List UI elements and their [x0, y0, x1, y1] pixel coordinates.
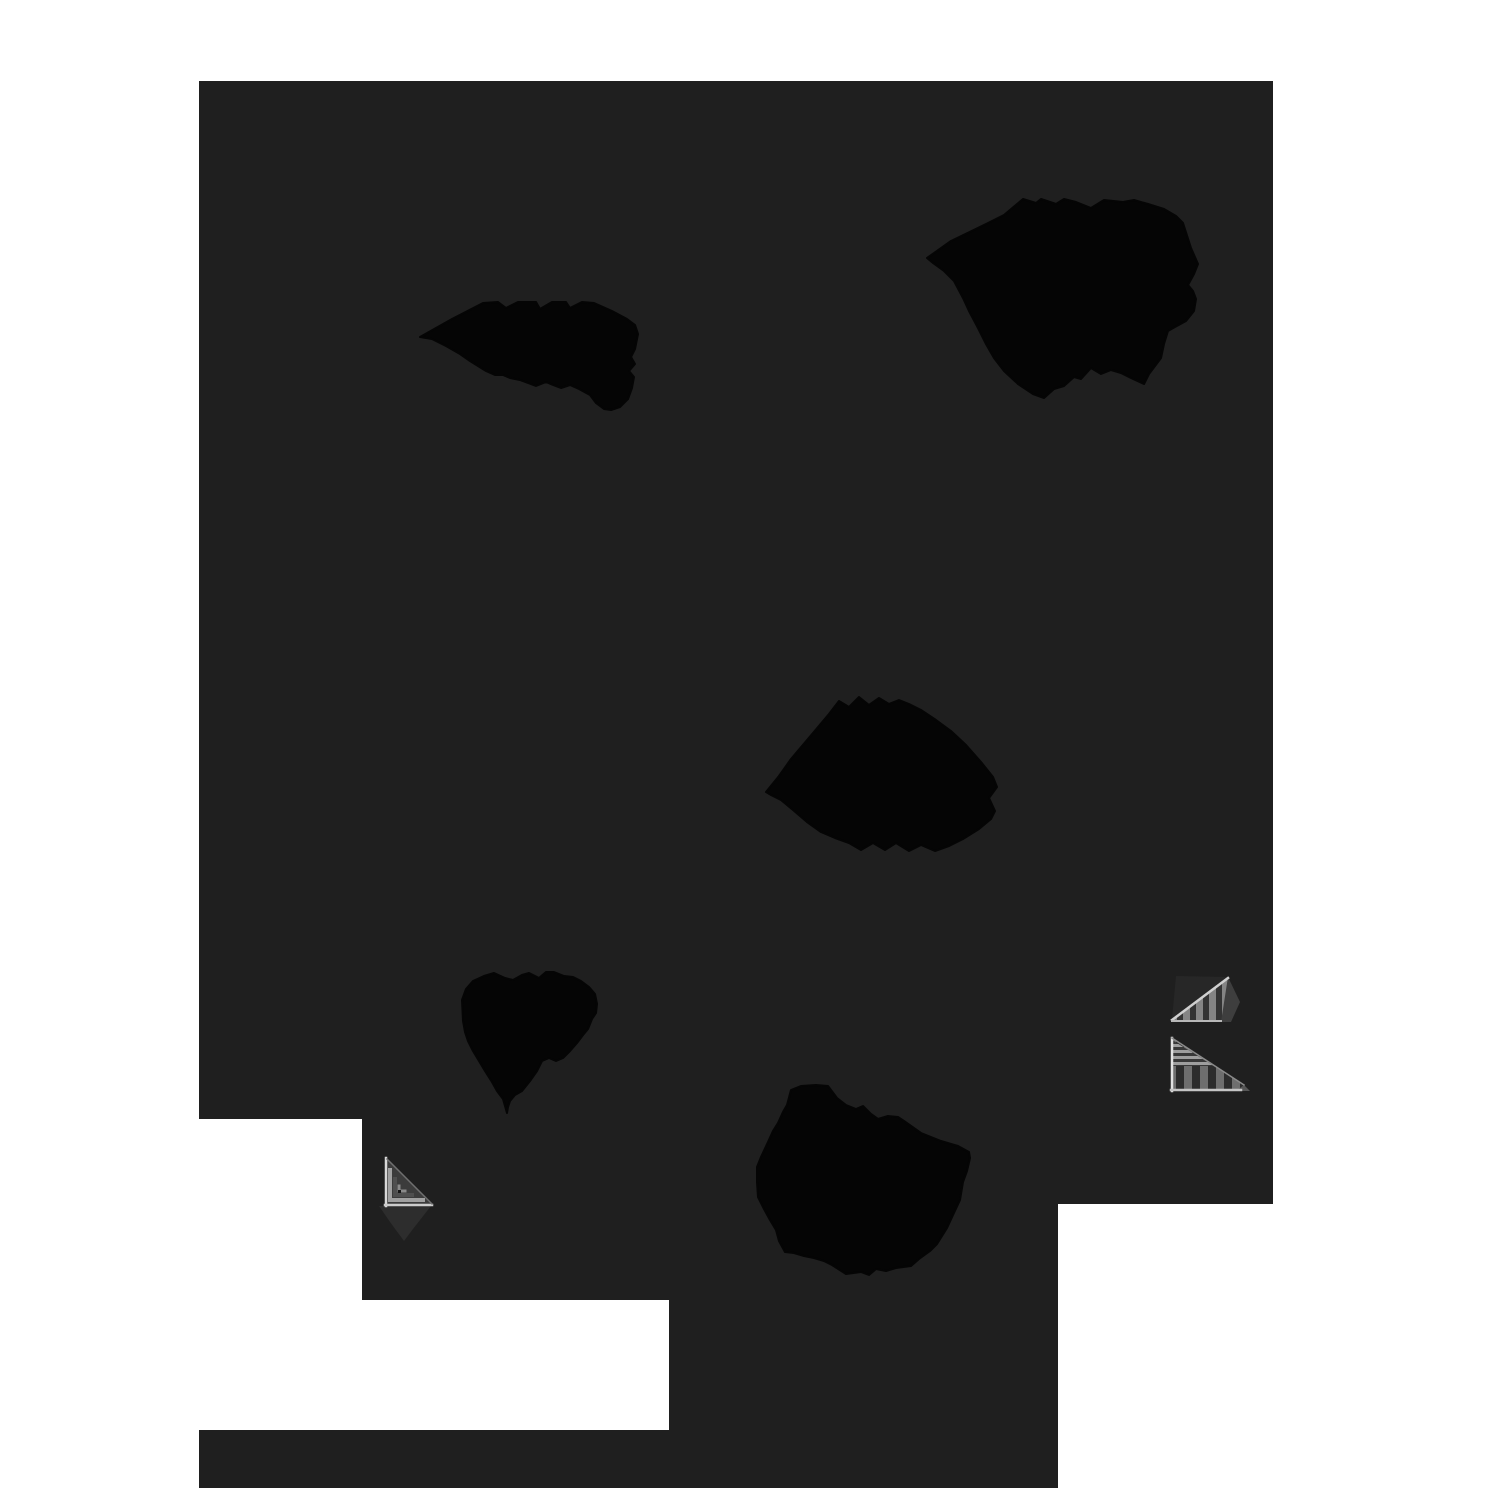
canvas [0, 0, 1500, 1500]
abstract-graphic [0, 0, 1500, 1500]
staircase-motif-right-upper [1172, 976, 1240, 1022]
stair-core-dot [398, 1190, 401, 1193]
